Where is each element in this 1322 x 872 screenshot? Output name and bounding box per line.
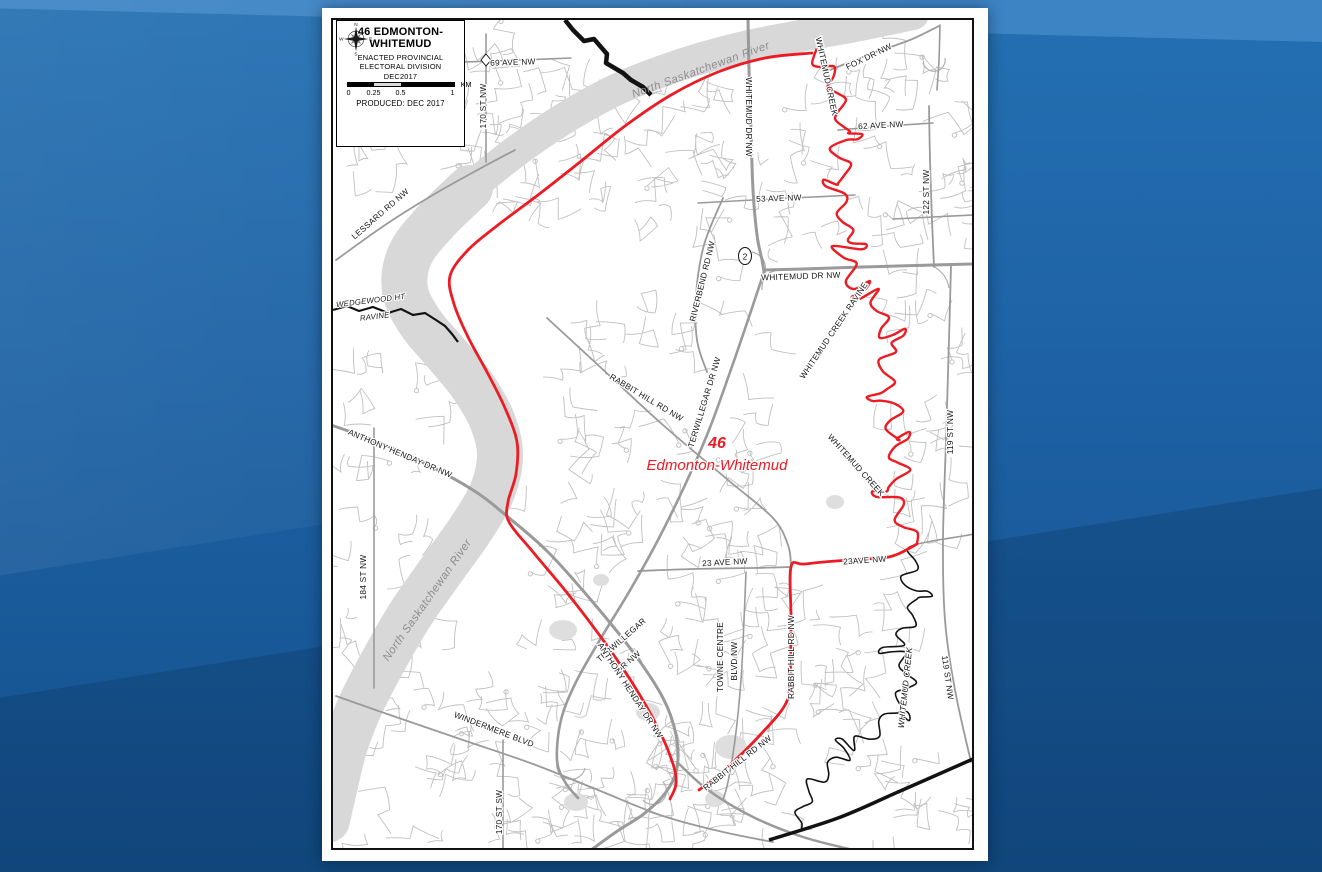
legend-box: 46 EDMONTON- WHITEMUD ENACTED PROVINCIAL… [336,20,465,147]
map-label: FOX DR NW [844,41,893,72]
map-label: WHITEMUD CREEK RAVINE [797,280,869,381]
scale-unit: KM [461,80,472,89]
compass-rose-icon: N E S W [337,21,375,57]
map-label: RAVINE [359,310,390,323]
map-label: 184 ST NW [358,555,368,600]
map-label: WINDERMERE BLVD [453,709,536,749]
map-label: RABBIT HILL RD NW [786,615,796,699]
map-label: Edmonton-Whitemud [647,457,789,474]
map-label: ANTHONY HENDAY DR NW [347,427,454,480]
map-label: 23 AVE NW [702,556,748,568]
scale-ticks: 0 0.25 0.5 1 [347,87,455,97]
map-label: 23AVE NW [843,554,887,567]
map-label: 170 ST SW [494,790,504,835]
map-label: WHITEMUD CREEK [896,647,914,729]
map-label: 62 AVE NW [858,119,904,131]
map-label: BLVD NW [729,642,739,681]
svg-text:E: E [369,37,372,43]
map-label: WHITEMUD CREEK [814,36,840,117]
map-label: WHITEMUD DR NW [761,270,841,283]
highway-2-shield: 2 [739,248,752,265]
map-label: WHITEMUD CREEK [826,432,887,498]
black-diagonal-southeast [769,759,972,840]
map-label: RABBIT HILL RD NW [608,372,685,424]
map-label: 53 AVE NW [756,192,802,204]
page-background: 2 69 AVE NW170 ST NWFOX DR NW62 AVE NW12… [0,0,1322,872]
svg-text:S: S [354,52,357,57]
map-label: 170 ST NW [478,84,488,129]
highway-2-shield-label: 2 [743,252,748,262]
map-frame: 2 69 AVE NW170 ST NWFOX DR NW62 AVE NW12… [331,18,974,850]
map-label: TOWNE CENTRE [715,622,725,692]
svg-text:W: W [339,37,344,43]
produced-date: PRODUCED: DEC 2017 [337,99,464,108]
scale-bar: KM 0 0.25 0.5 1 [347,82,455,97]
map-label: 69 AVE NW [490,56,536,68]
map-label: 46 [707,435,726,452]
map-label: 119 ST NW [945,410,955,454]
map-label: 122 ST NW [921,170,931,215]
map-labels: 69 AVE NW170 ST NWFOX DR NW62 AVE NW122 … [336,36,956,834]
svg-text:N: N [354,22,358,28]
map-panel: 2 69 AVE NW170 ST NWFOX DR NW62 AVE NW12… [322,8,988,861]
map-label: 119 ST NW [940,655,956,700]
map-title-line2: WHITEMUD [369,38,431,50]
map-label: WHITEMUD DR NW [744,77,754,157]
